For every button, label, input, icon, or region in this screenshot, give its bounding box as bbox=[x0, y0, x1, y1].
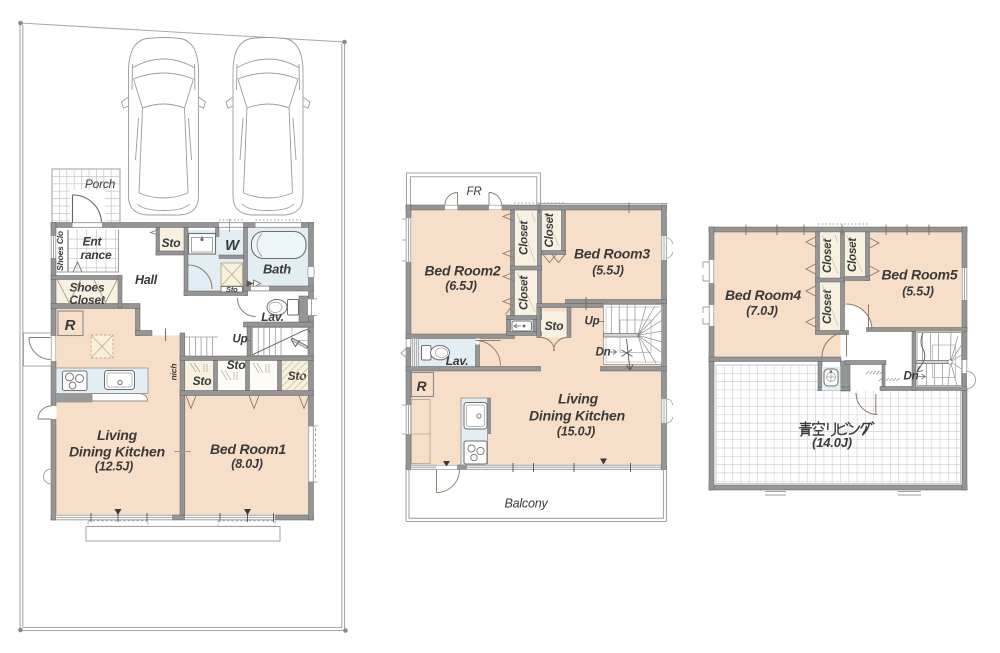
svg-text:(14.0J): (14.0J) bbox=[812, 435, 852, 450]
svg-text:Dining Kitchen: Dining Kitchen bbox=[529, 408, 625, 424]
svg-text:R: R bbox=[417, 378, 428, 394]
svg-text:Sto: Sto bbox=[226, 285, 238, 294]
svg-text:Living: Living bbox=[558, 391, 599, 407]
svg-text:Bed Room2: Bed Room2 bbox=[425, 263, 501, 279]
svg-text:Bath: Bath bbox=[263, 262, 291, 277]
svg-text:Closet: Closet bbox=[847, 237, 859, 272]
svg-text:Ent: Ent bbox=[83, 235, 103, 249]
svg-text:Lav.: Lav. bbox=[446, 354, 469, 368]
svg-text:(12.5J): (12.5J) bbox=[95, 460, 133, 474]
svg-text:Bed Room3: Bed Room3 bbox=[574, 246, 650, 262]
svg-text:Dn: Dn bbox=[596, 347, 611, 359]
svg-text:Sto: Sto bbox=[545, 319, 564, 333]
svg-text:Living: Living bbox=[97, 427, 138, 443]
svg-text:Up: Up bbox=[585, 316, 600, 328]
svg-text:(8.0J): (8.0J) bbox=[231, 457, 262, 471]
svg-text:Bed Room4: Bed Room4 bbox=[725, 287, 801, 303]
svg-text:Lav.: Lav. bbox=[261, 310, 284, 324]
svg-text:(5.5J): (5.5J) bbox=[592, 264, 623, 278]
svg-text:Closet: Closet bbox=[519, 220, 531, 255]
svg-text:FR: FR bbox=[467, 186, 482, 198]
svg-text:Closet: Closet bbox=[822, 238, 834, 273]
svg-text:R: R bbox=[65, 317, 76, 334]
svg-text:W: W bbox=[225, 237, 241, 254]
svg-text:Balcony: Balcony bbox=[504, 497, 548, 511]
svg-text:Bed Room1: Bed Room1 bbox=[210, 441, 286, 457]
svg-text:Porch: Porch bbox=[85, 177, 116, 191]
svg-text:(5.5J): (5.5J) bbox=[902, 285, 933, 299]
svg-text:Closet: Closet bbox=[822, 289, 834, 324]
svg-text:(7.0J): (7.0J) bbox=[746, 304, 777, 318]
svg-text:Sto: Sto bbox=[162, 236, 181, 250]
svg-text:rance: rance bbox=[80, 248, 112, 262]
svg-text:Dining Kitchen: Dining Kitchen bbox=[69, 444, 165, 460]
svg-text:Up: Up bbox=[233, 334, 248, 346]
svg-text:Sto: Sto bbox=[227, 358, 246, 372]
svg-text:(6.5J): (6.5J) bbox=[445, 279, 476, 293]
svg-text:Closet: Closet bbox=[69, 293, 106, 307]
svg-text:Hall: Hall bbox=[135, 273, 158, 287]
svg-text:Dn: Dn bbox=[904, 371, 919, 383]
svg-text:(15.0J): (15.0J) bbox=[557, 425, 595, 439]
svg-text:Sto: Sto bbox=[193, 374, 212, 388]
svg-text:nich: nich bbox=[169, 364, 179, 381]
svg-text:Bed Room5: Bed Room5 bbox=[882, 267, 958, 283]
